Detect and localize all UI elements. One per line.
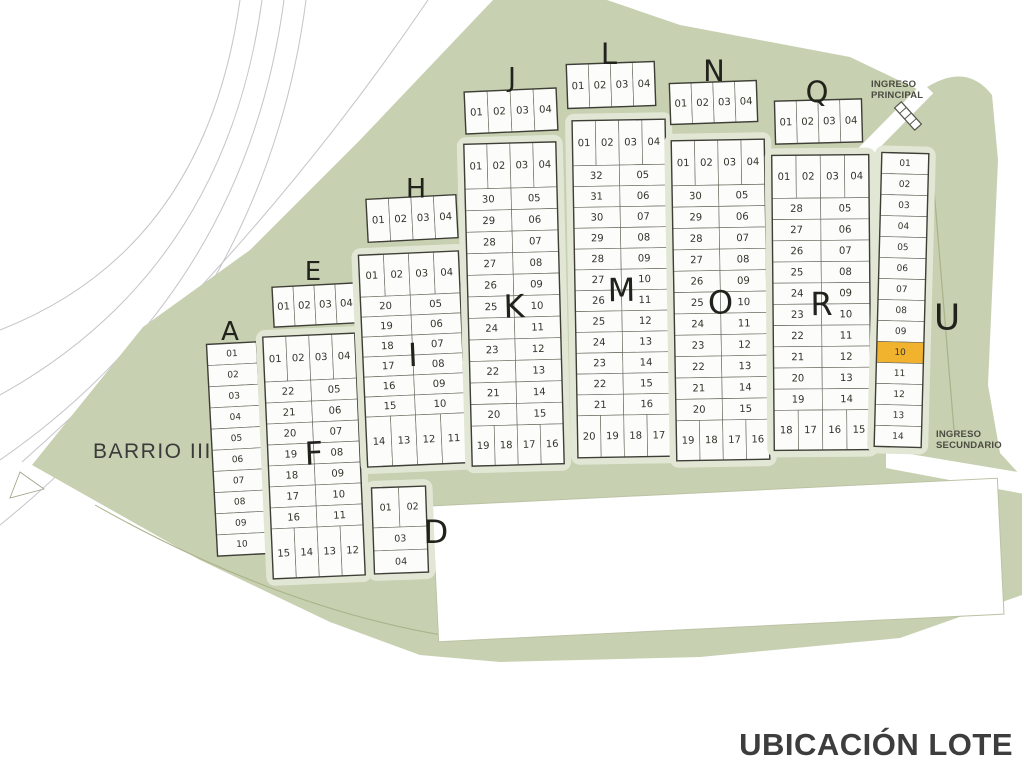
page-title: UBICACIÓN LOTE [739,727,1013,763]
lot-number: 09 [235,518,247,529]
lot-number: 14 [640,357,653,368]
lot-number: 16 [751,434,764,445]
lot-number: 30 [591,212,604,223]
lot-number: 01 [469,161,482,172]
lot-number: 02 [802,172,815,183]
lot-number: 17 [804,425,817,436]
lot-number: 27 [483,259,496,270]
lot-number: 01 [899,159,911,169]
lot-number: 17 [728,435,741,446]
lot-number: 16 [546,439,559,450]
lot-number: 19 [792,395,805,406]
block-U: 0102030405060708091011121314 [867,145,936,454]
lot-map-stage: 01020304050607080910A01020304D01020304E0… [0,0,1024,768]
lot-number: 20 [792,373,805,384]
lot-number: 10 [433,399,446,411]
lot-number: 22 [282,386,295,398]
lot-number: 21 [791,352,804,363]
lot-number: 06 [430,319,443,331]
lot-number: 06 [232,455,244,466]
lot-number: 04 [845,115,858,126]
block-letter: I [407,336,418,374]
lot-number: 05 [429,299,442,311]
lot-number: 02 [492,161,505,172]
block-O: 0102030430052906280727082609251024112312… [664,132,777,468]
lot-number: 25 [485,302,498,313]
lot-number: 01 [778,172,791,183]
lot-number: 14 [300,547,313,559]
lot-number: 24 [691,319,704,330]
lot-number: 15 [853,425,866,436]
lot-number: 08 [432,359,445,371]
lot-number: 04 [539,104,552,116]
lot-number: 03 [515,160,528,171]
lot-number: 25 [791,267,804,278]
lot-number: 02 [298,300,311,312]
lot-number: 03 [615,79,628,90]
lot-number: 24 [593,337,606,348]
lot-number: 14 [533,387,546,398]
lot-number: 15 [533,408,546,419]
lot-number: 01 [677,158,690,169]
lot-number: 07 [329,426,342,438]
lot-number: 08 [737,254,750,265]
lot-number: 20 [283,428,296,440]
lot-number: 09 [331,468,344,480]
lot-number: 31 [590,192,603,203]
lot-number: 26 [790,246,803,257]
lot-number: 01 [379,502,391,513]
lot-number: 18 [285,470,298,482]
lot-number: 08 [839,267,852,278]
block-letter: L [601,37,617,71]
lot-number: 12 [346,545,359,557]
lot-number: 03 [823,116,836,127]
lot-number: 16 [287,512,300,524]
lot-number: 05 [328,384,341,396]
lot-number: 04 [898,222,910,232]
lot-number: 23 [593,358,606,369]
lot-number: 06 [736,212,749,223]
lot-number: 28 [790,204,803,215]
block-letter: M [607,271,635,309]
lot-number: 02 [390,269,403,281]
lot-number: 01 [779,117,792,128]
lot-number: 27 [592,275,605,286]
block-letter: N [703,54,725,88]
lot-number: 04 [647,137,660,148]
lot-number: 02 [593,80,606,91]
block-letter: K [503,287,526,326]
lot-number: 11 [639,295,652,306]
lot-number: 19 [606,431,619,442]
lot-number: 11 [531,322,544,333]
lot-number: 09 [737,276,750,287]
lot-number: 10 [531,301,544,312]
lot-number: 05 [839,203,852,214]
lot-number: 03 [516,105,529,117]
lot-number: 03 [826,171,839,182]
lot-number: 13 [323,546,336,558]
lot-number: 18 [780,425,793,436]
lot-number: 07 [896,285,908,295]
lot-number: 04 [747,157,760,168]
site-tip-notch [10,472,44,498]
lot-number: 16 [640,399,653,410]
lot-number: 01 [277,301,290,313]
lot-number: 07 [637,212,650,223]
lot-number: 05 [230,434,242,445]
lot-number: 04 [395,556,407,567]
lot-number: 04 [338,351,351,363]
block-letter: O [708,283,734,321]
lot-number: 30 [689,191,702,202]
lot-number: 02 [394,214,407,226]
lot-number: 22 [593,379,606,390]
lot-number: 20 [693,405,706,416]
lot-number: 05 [897,243,909,253]
lot-number: 23 [692,341,705,352]
lot-number: 19 [380,321,393,333]
lot-number: 03 [417,213,430,225]
lot-number: 09 [530,279,543,290]
lot-number: 06 [328,405,341,417]
lot-number: 21 [487,388,500,399]
lot-number: 20 [487,410,500,421]
lot-number: 09 [638,253,651,264]
lot-number: 27 [690,255,703,266]
lot-number: 28 [690,234,703,245]
lot-number: 04 [439,211,452,223]
block-J: 01020304 [464,88,558,134]
lot-number: 11 [333,510,346,522]
lot-number: 06 [528,215,541,226]
lot-number: 03 [319,299,332,311]
block-letter: U [934,298,960,339]
lot-number: 01 [365,270,378,282]
block-letter: Q [806,75,829,109]
lot-number: 29 [482,216,495,227]
lot-number: 12 [893,390,905,400]
block-letter: D [424,513,449,551]
lot-number: 03 [394,533,406,544]
lot-number: 14 [372,436,385,448]
lot-number: 05 [528,193,541,204]
block-letter: A [221,317,239,347]
lot-number: 17 [286,491,299,503]
block-letter: F [304,434,324,473]
lot-number: 04 [740,96,753,107]
lot-number: 15 [640,378,653,389]
lot-number: 07 [839,246,852,257]
block-letter: J [506,63,516,94]
lot-number: 19 [682,435,695,446]
lot-number: 03 [723,157,736,168]
lot-number: 16 [828,425,841,436]
lot-number: 05 [735,190,748,201]
lot-number: 06 [839,225,852,236]
lot-number: 03 [898,201,910,211]
lot-number: 03 [315,352,328,364]
lot-number: 05 [636,170,649,181]
lot-number: 19 [477,441,490,452]
lot-number: 18 [500,440,513,451]
lot-number: 06 [896,264,908,274]
lot-number: 22 [791,331,804,342]
lot-number: 10 [737,297,750,308]
lot-number: 18 [629,431,642,442]
lot-number: 11 [840,331,853,342]
lot-number: 08 [529,258,542,269]
lot-number: 17 [382,361,395,373]
block-I: 0102030420051906180717081609151014131211… [351,244,475,475]
lot-number: 21 [283,407,296,419]
lot-number: 29 [591,233,604,244]
lot-number: 06 [637,191,650,202]
lot-number: 02 [292,353,305,365]
lot-number: 09 [433,379,446,391]
lot-number: 13 [840,373,853,384]
lot-number: 11 [738,318,751,329]
site-plan-svg: 01020304050607080910A01020304D01020304E0… [0,0,1024,768]
lot-number: 03 [624,137,637,148]
lot-number: 09 [839,288,852,299]
lot-number: 08 [330,447,343,459]
block-letter: H [406,174,426,205]
lot-number: 14 [739,382,752,393]
lot-number: 22 [486,367,499,378]
lot-number: 26 [690,276,703,287]
lot-number: 20 [379,301,392,313]
block-K: 0102030430052906280727082609251024112312… [457,135,572,474]
lot-number: 10 [894,348,906,358]
lot-number: 01 [470,107,483,119]
lot-number: 12 [840,352,853,363]
lot-number: 10 [332,489,345,501]
lot-number: 24 [485,323,498,334]
lot-number: 02 [493,106,506,118]
lot-number: 23 [791,310,804,321]
lot-number: 01 [269,354,282,366]
lot-number: 21 [594,400,607,411]
lot-number: 18 [381,341,394,353]
lot-number: 21 [692,383,705,394]
lot-number: 12 [738,340,751,351]
lot-number: 18 [705,435,718,446]
lot-number: 04 [340,298,353,310]
lot-number: 01 [372,215,385,227]
block-F: 0102030422052106200719081809171016111514… [255,326,372,586]
lot-number: 02 [227,370,239,381]
lot-number: 13 [532,365,545,376]
lot-number: 07 [233,476,245,487]
lot-number: 28 [483,237,496,248]
lot-number: 01 [571,81,584,92]
lot-number: 25 [691,298,704,309]
lot-number: 14 [892,432,904,442]
lot-number: 13 [397,435,410,447]
block-letter: R [810,285,833,323]
block-R: 0102030428052706260725082409231022112112… [765,148,879,458]
road-line [0,0,240,330]
lot-number: 11 [447,433,460,445]
lot-number: 02 [601,138,614,149]
lot-number: 09 [895,327,907,337]
lot-number: 29 [689,212,702,223]
lot-number: 02 [899,180,911,190]
lot-number: 10 [638,274,651,285]
lot-number: 15 [383,401,396,413]
lot-number: 04 [637,79,650,90]
lot-number: 12 [422,434,435,446]
lot-number: 02 [696,98,709,109]
lot-number: 24 [791,289,804,300]
lot-number: 22 [692,362,705,373]
lot-number: 27 [790,225,803,236]
lot-number: 12 [639,316,652,327]
lot-number: 13 [738,361,751,372]
lot-number: 26 [592,296,605,307]
lot-number: 15 [277,548,290,560]
lot-number: 25 [592,317,605,328]
lot-number: 20 [583,431,596,442]
lot-number: 17 [523,439,536,450]
reserved-area [432,478,1004,641]
lot-number: 02 [700,158,713,169]
lot-number: 13 [639,337,652,348]
lot-number: 17 [652,430,665,441]
lot-number: 23 [486,345,499,356]
lot-number: 28 [591,254,604,265]
lot-number: 07 [431,339,444,351]
lot-number: 32 [590,171,603,182]
lot-number: 14 [840,394,853,405]
lot-number: 11 [894,369,906,379]
lot-number: 08 [895,306,907,316]
ingreso-principal-label: INGRESOPRINCIPAL [871,79,923,101]
lot-number: 02 [406,501,418,512]
lot-number: 01 [578,138,591,149]
lot-number: 01 [226,349,238,360]
block-M: 0102030432053106300729082809271026112512… [565,112,678,465]
lot-number: 04 [229,412,241,423]
lot-number: 02 [801,117,814,128]
lot-number: 07 [736,233,749,244]
lot-number: 12 [532,344,545,355]
lot-number: 04 [850,171,863,182]
lot-number: 15 [739,404,752,415]
block-E: 01020304 [272,283,358,327]
lot-number: 07 [529,236,542,247]
lot-number: 08 [637,232,650,243]
lot-number: 19 [284,449,297,461]
lot-number: 10 [839,309,852,320]
lot-number: 13 [893,411,905,421]
lot-number: 30 [482,194,495,205]
lot-number: 03 [228,391,240,402]
lot-number: 01 [674,98,687,109]
lot-number: 08 [234,497,246,508]
lot-number: 03 [415,268,428,280]
barrio-label: BARRIO III [93,440,212,463]
block-letter: E [305,257,321,287]
lot-number: 26 [484,280,497,291]
lot-number: 16 [383,381,396,393]
lot-number: 04 [440,267,453,279]
lot-number: 03 [718,97,731,108]
lot-number: 10 [236,539,248,550]
lot-number: 04 [538,159,551,170]
